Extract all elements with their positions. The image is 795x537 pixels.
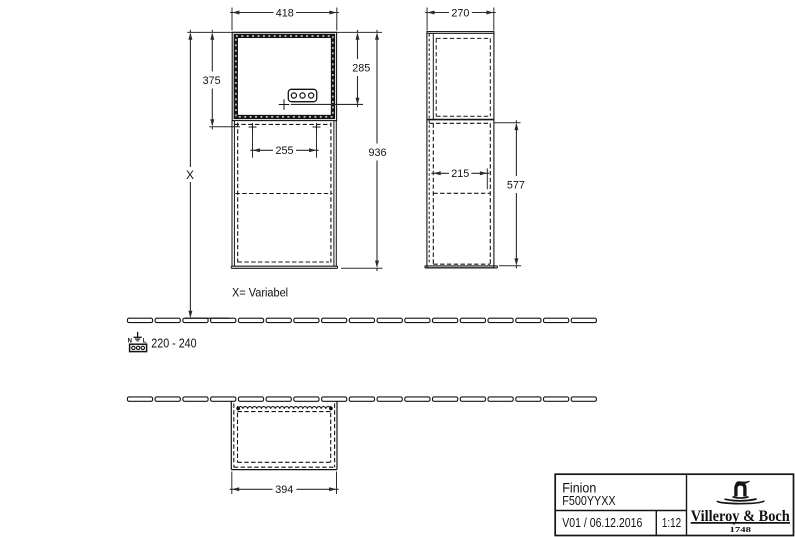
- svg-text:285: 285: [352, 62, 370, 74]
- svg-text:Finion: Finion: [562, 479, 596, 495]
- svg-text:1:12: 1:12: [662, 516, 681, 530]
- svg-text:F500YYXX: F500YYXX: [562, 494, 616, 508]
- svg-text:1748: 1748: [730, 526, 752, 534]
- svg-text:X: X: [186, 168, 194, 182]
- svg-text:255: 255: [275, 145, 293, 157]
- svg-text:394: 394: [275, 484, 293, 496]
- svg-text:577: 577: [507, 179, 525, 191]
- svg-text:375: 375: [203, 75, 221, 87]
- svg-text:418: 418: [276, 7, 294, 19]
- svg-text:270: 270: [451, 7, 469, 19]
- svg-text:220 - 240: 220 - 240: [151, 337, 196, 351]
- svg-text:V01 / 06.12.2016: V01 / 06.12.2016: [562, 515, 642, 530]
- svg-text:X= Variabel: X= Variabel: [232, 286, 288, 300]
- svg-text:215: 215: [451, 168, 469, 180]
- svg-text:936: 936: [368, 147, 386, 159]
